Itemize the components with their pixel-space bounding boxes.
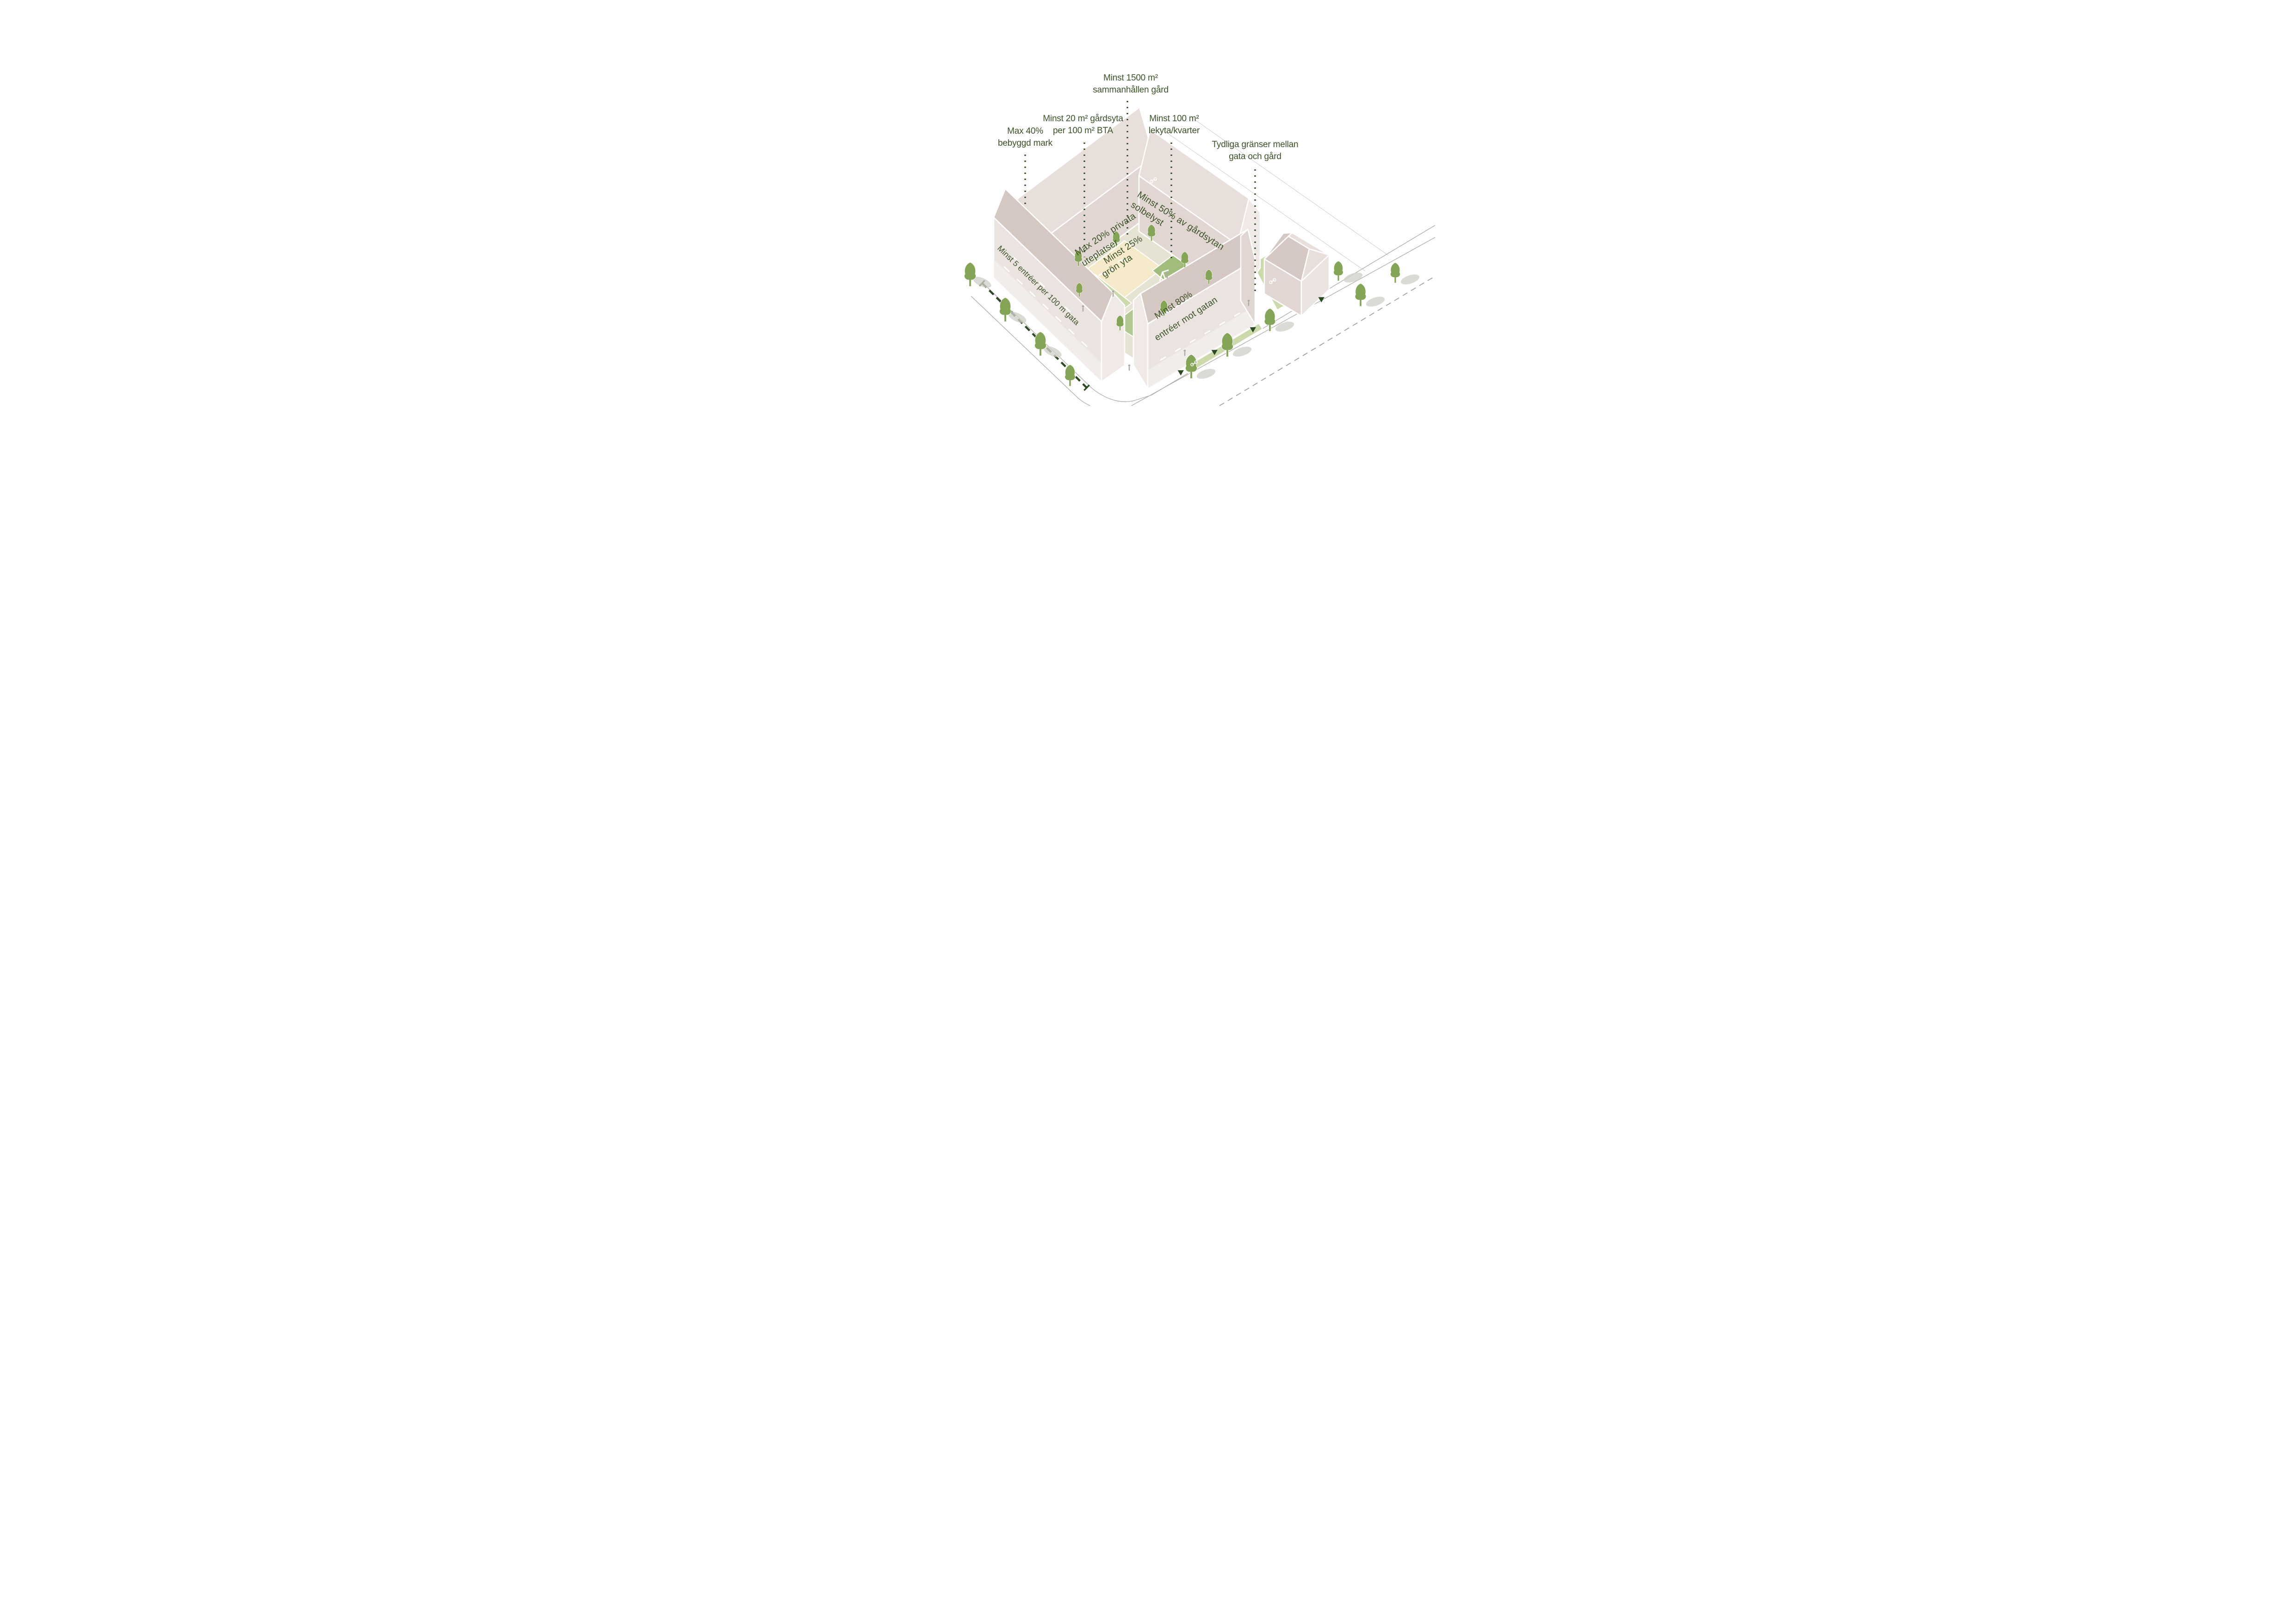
tree-shadow: [1195, 367, 1217, 381]
street-tree: [1355, 284, 1366, 306]
tree-shadow: [1365, 295, 1386, 309]
tree-shadow: [1399, 273, 1421, 286]
label-clear-boundaries-line1: Tydliga gränser mellan: [1212, 140, 1299, 149]
street-tree: [965, 263, 976, 286]
street-tree: [1000, 298, 1011, 322]
street-tree: [1264, 309, 1275, 331]
urban-block-diagram: Minst 1500 m² sammanhållen gård Minst 20…: [861, 0, 1435, 406]
label-max-built-line2: bebyggd mark: [998, 138, 1053, 148]
tree-shadow: [1232, 345, 1253, 359]
label-cohesive-yard-line2: sammanhållen gård: [1093, 85, 1168, 95]
tree-shadow: [1274, 320, 1295, 334]
street-tree: [1391, 263, 1400, 283]
label-play-area-line2: lekyta/kvarter: [1149, 126, 1200, 136]
person-icon: [1128, 365, 1131, 371]
label-play-area-line1: Minst 100 m²: [1149, 114, 1199, 124]
axonometric-block-illustration: Minst 1500 m² sammanhållen gård Minst 20…: [861, 0, 1435, 406]
label-max-built-line1: Max 40%: [1007, 126, 1043, 136]
label-clear-boundaries-line2: gata och gård: [1229, 152, 1281, 161]
street-tree: [1334, 261, 1343, 281]
street-tree: [1065, 365, 1075, 386]
street-tree: [1035, 332, 1046, 356]
label-yard-per-bta-line1: Minst 20 m² gårdsyta: [1043, 114, 1123, 124]
street-tree: [1222, 333, 1233, 357]
label-yard-per-bta-line2: per 100 m² BTA: [1053, 126, 1113, 136]
label-cohesive-yard-line1: Minst 1500 m²: [1103, 73, 1158, 83]
